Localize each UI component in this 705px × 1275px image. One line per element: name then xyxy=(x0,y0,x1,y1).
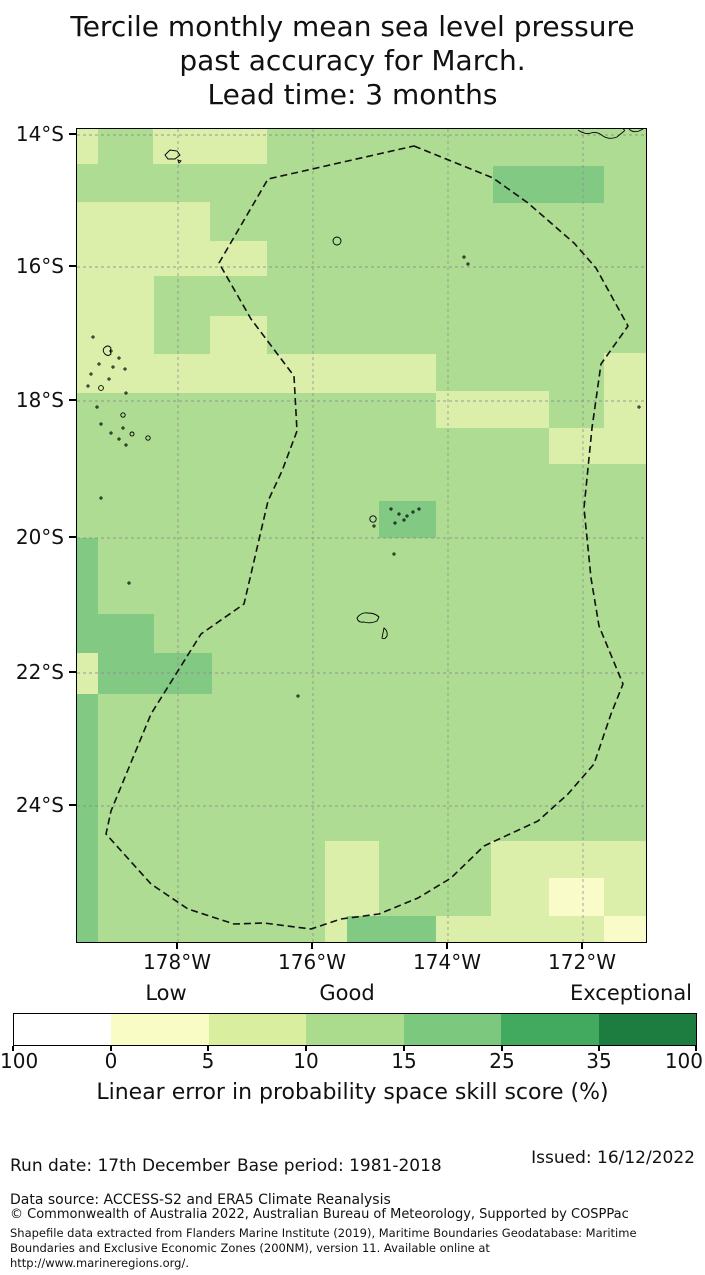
colorbar-tick-label: 100 xyxy=(0,1049,38,1073)
colorbar-tick-label: 15 xyxy=(391,1049,416,1073)
skill-cell xyxy=(77,538,98,614)
skill-cell xyxy=(77,354,436,393)
colorbar-segment xyxy=(14,1014,111,1045)
skill-cell xyxy=(379,501,436,538)
skill-cell xyxy=(436,916,604,942)
skill-cell xyxy=(347,916,436,942)
skill-cell xyxy=(549,428,646,464)
lon-tick-mark xyxy=(311,942,312,949)
lon-tick-mark xyxy=(446,942,447,949)
colorbar-tick-mark xyxy=(110,1046,111,1051)
lat-tick-mark xyxy=(69,265,76,266)
run-date-text: Run date: 17th December xyxy=(10,1156,230,1176)
colorbar-tick-label: 35 xyxy=(586,1049,611,1073)
colorbar-segment xyxy=(111,1014,208,1045)
colorbar-tick-mark xyxy=(598,1046,599,1051)
colorbar-category-exceptional: Exceptional xyxy=(570,981,692,1005)
data-source-text: Data source: ACCESS-S2 and ERA5 Climate … xyxy=(10,1192,391,1208)
skill-cell xyxy=(77,653,98,694)
colorbar-tick-label: 100 xyxy=(665,1049,703,1073)
colorbar-tick-mark xyxy=(12,1046,13,1051)
colorbar-segment xyxy=(209,1014,306,1045)
colorbar-segment xyxy=(501,1014,598,1045)
lat-tick-mark xyxy=(69,671,76,672)
colorbar-tick-label: 25 xyxy=(489,1049,514,1073)
skill-cell xyxy=(77,202,210,276)
issued-date-text: Issued: 16/12/2022 xyxy=(531,1148,695,1168)
skill-cell xyxy=(493,166,604,203)
lon-tick-mark xyxy=(176,942,177,949)
skill-cell xyxy=(325,841,379,916)
lat-tick-mark xyxy=(69,804,76,805)
colorbar-tick-mark xyxy=(207,1046,208,1051)
colorbar-tick-mark xyxy=(501,1046,502,1051)
colorbar xyxy=(13,1013,697,1046)
colorbar-segment xyxy=(306,1014,403,1045)
colorbar-category-good: Good xyxy=(319,981,374,1005)
colorbar-category-low: Low xyxy=(145,981,186,1005)
colorbar-segment xyxy=(599,1014,696,1045)
colorbar-axis-label: Linear error in probability space skill … xyxy=(0,1080,705,1105)
lon-tick-label: 178°W xyxy=(132,950,222,974)
colorbar-tick-label: 5 xyxy=(202,1049,215,1073)
lat-tick-mark xyxy=(69,133,76,134)
lat-tick-label: 20°S xyxy=(2,525,64,549)
lat-tick-label: 18°S xyxy=(2,388,64,412)
skill-cell xyxy=(210,241,267,276)
lat-tick-mark xyxy=(69,536,76,537)
skill-cell xyxy=(98,653,212,694)
base-period-text: Base period: 1981-2018 xyxy=(237,1156,442,1176)
figure-title: Tercile monthly mean sea level pressure … xyxy=(0,10,705,112)
colorbar-tick-mark xyxy=(695,1046,696,1051)
lat-tick-label: 24°S xyxy=(2,793,64,817)
lat-tick-label: 22°S xyxy=(2,660,64,684)
skill-cell xyxy=(604,916,646,942)
title-line-3: Lead time: 3 months xyxy=(0,78,705,112)
skill-cell xyxy=(604,878,646,916)
lon-tick-label: 176°W xyxy=(267,950,357,974)
colorbar-tick-label: 0 xyxy=(105,1049,118,1073)
copyright-line-2: Shapefile data extracted from Flanders M… xyxy=(10,1226,637,1240)
title-line-1: Tercile monthly mean sea level pressure xyxy=(0,10,705,44)
lat-tick-mark xyxy=(69,399,76,400)
skill-cell xyxy=(491,878,549,916)
lon-tick-mark xyxy=(581,942,582,949)
skill-cell xyxy=(436,391,549,428)
title-line-2: past accuracy for March. xyxy=(0,44,705,78)
lat-tick-label: 14°S xyxy=(2,122,64,146)
colorbar-tick-mark xyxy=(403,1046,404,1051)
colorbar-tick-mark xyxy=(305,1046,306,1051)
colorbar-tick-label: 10 xyxy=(293,1049,318,1073)
skill-cell xyxy=(604,353,646,428)
skill-cell xyxy=(77,614,154,653)
lon-tick-label: 172°W xyxy=(537,950,627,974)
skill-cell xyxy=(77,694,98,942)
lon-tick-label: 174°W xyxy=(402,950,492,974)
skill-cell xyxy=(77,129,98,164)
copyright-line-3: Boundaries and Exclusive Economic Zones … xyxy=(10,1241,490,1255)
lat-tick-label: 16°S xyxy=(2,254,64,278)
skill-cell xyxy=(491,841,646,878)
copyright-line-4: http://www.marineregions.org/. xyxy=(10,1256,189,1270)
map-canvas xyxy=(76,128,647,943)
skill-cell xyxy=(549,878,604,916)
colorbar-segment xyxy=(404,1014,501,1045)
copyright-line-1: © Commonwealth of Australia 2022, Austra… xyxy=(10,1207,629,1222)
skill-cell xyxy=(210,316,267,354)
